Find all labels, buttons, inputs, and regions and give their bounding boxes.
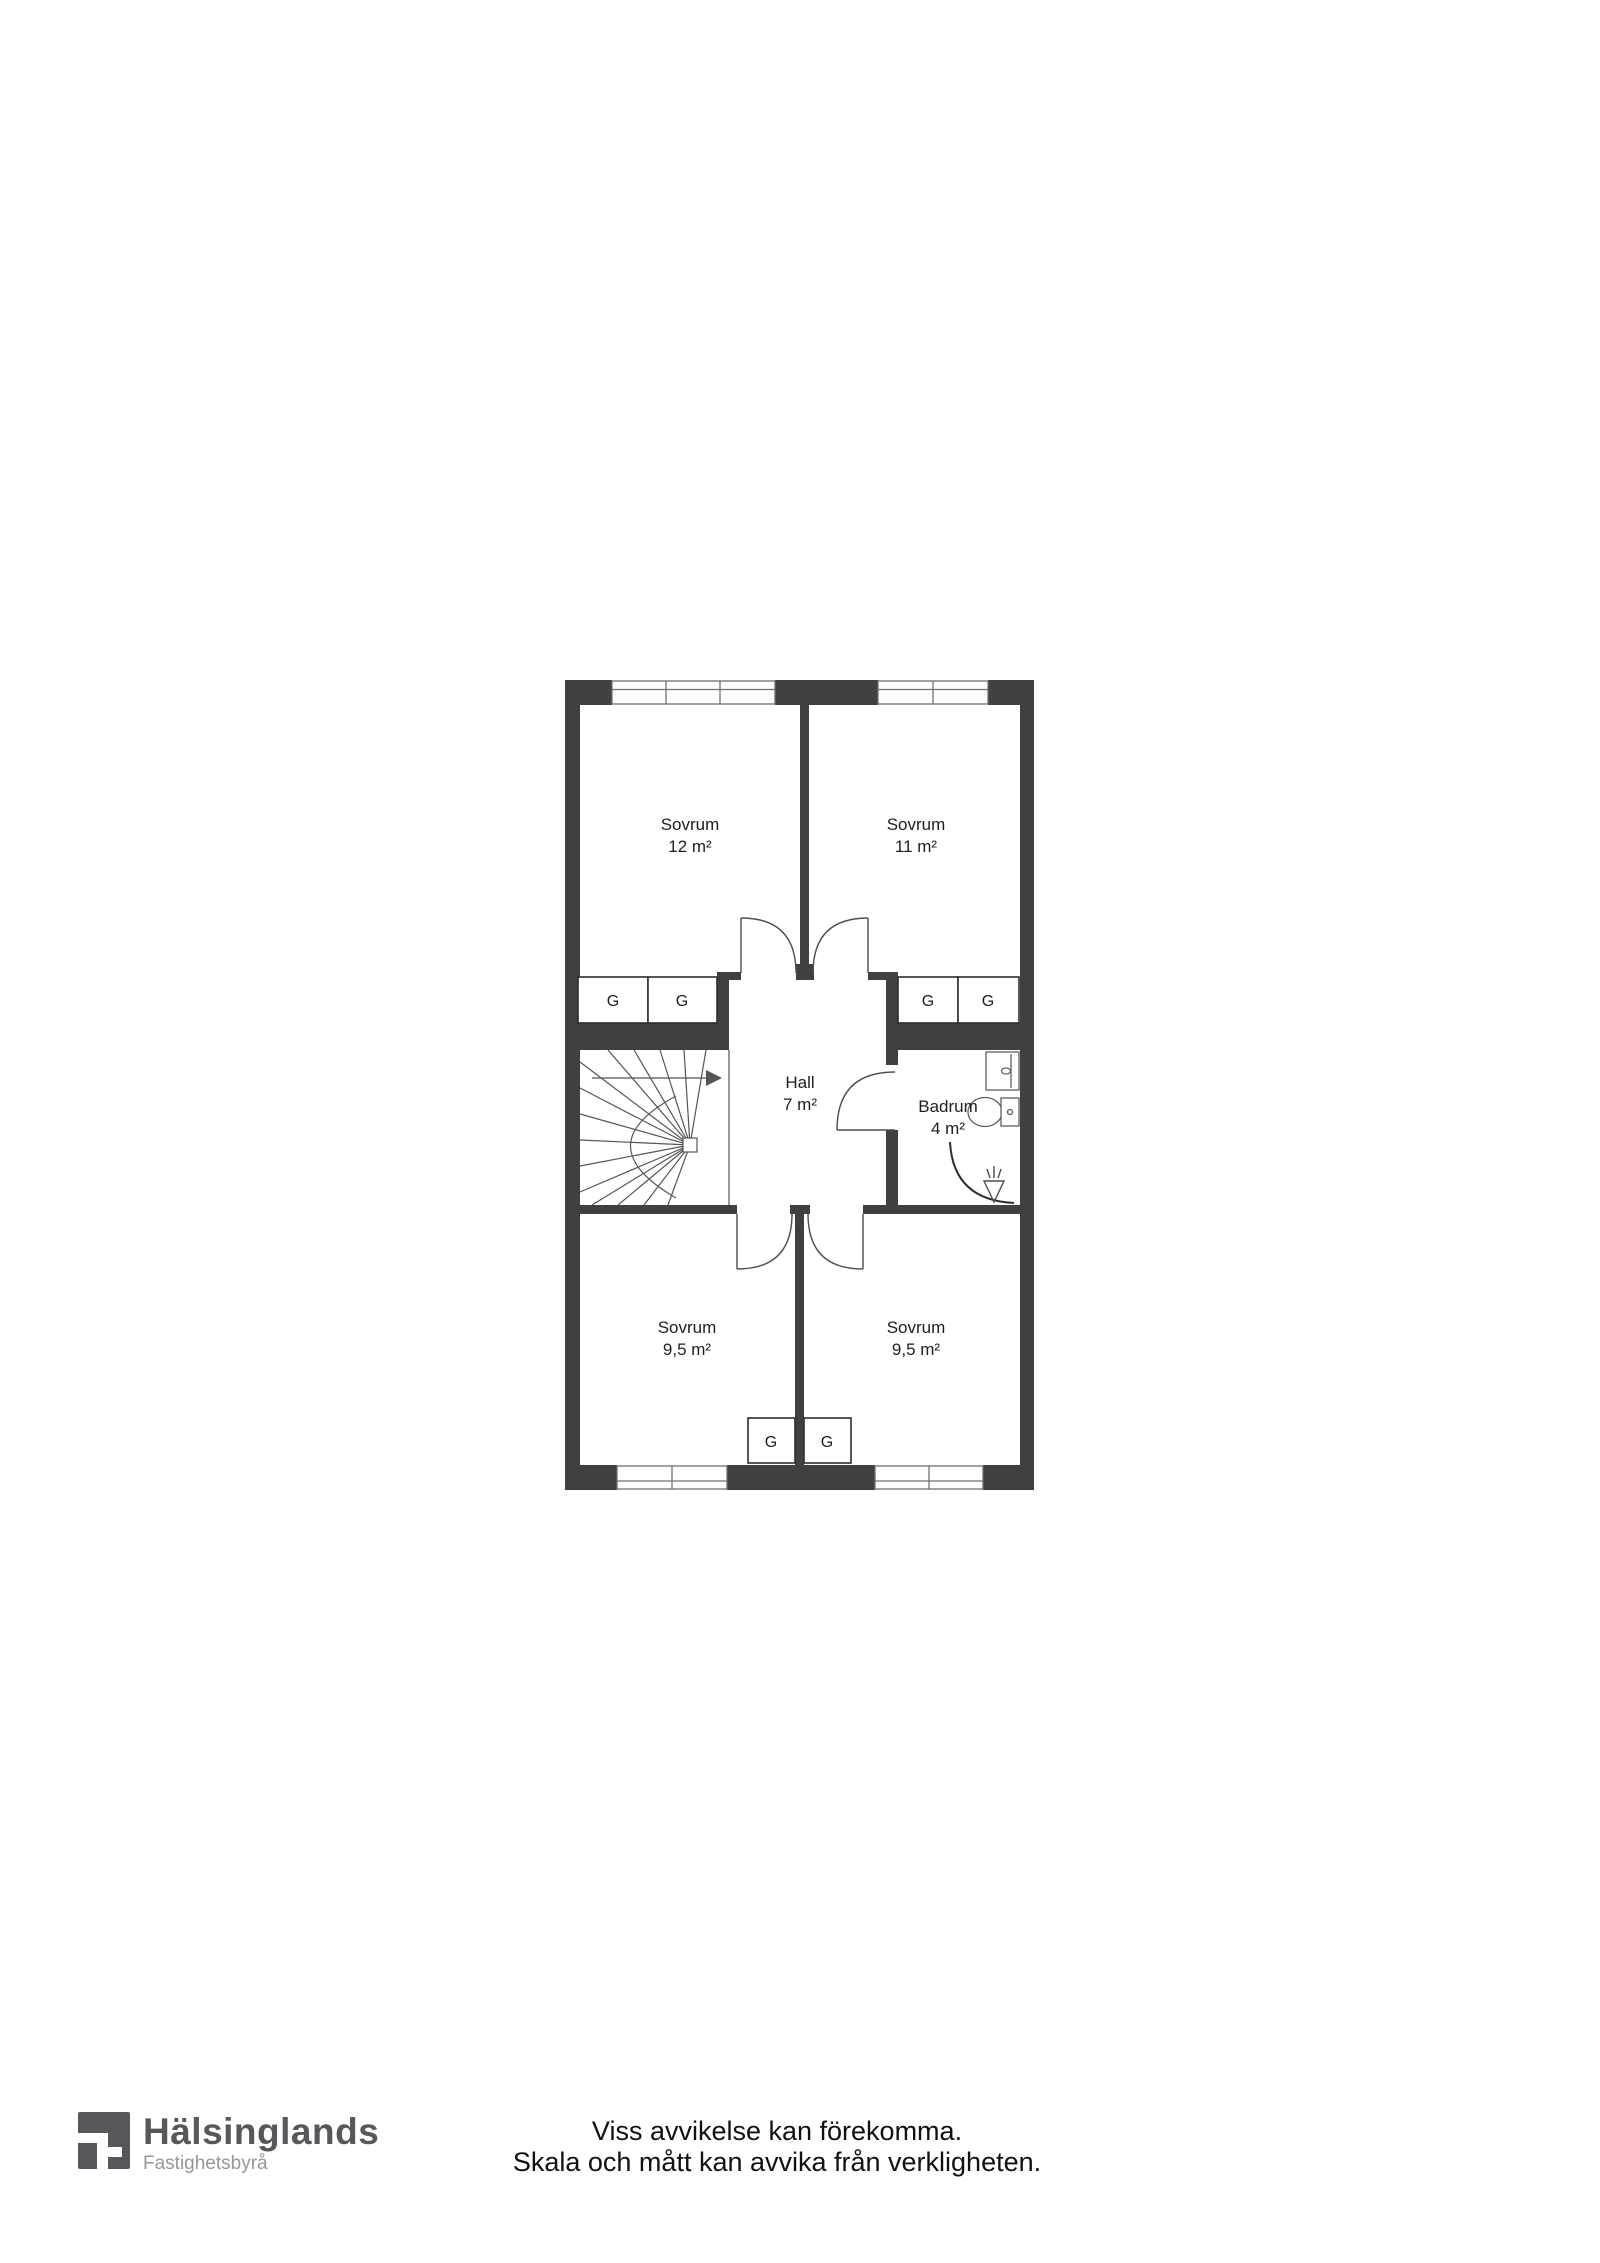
room-name-bedroom-tl: Sovrum <box>661 815 720 834</box>
brand-logo: Hälsinglands Fastighetsbyrå <box>78 2112 379 2174</box>
wall-bathroom-west-lower <box>886 1130 898 1205</box>
door-bedroom-br <box>808 1214 863 1269</box>
wall-bathroom-west-upper <box>886 972 898 1065</box>
room-area-bedroom-tl: 12 m² <box>668 837 712 856</box>
wall-exterior-bottom-1 <box>565 1465 617 1490</box>
room-area-bedroom-br: 9,5 m² <box>892 1340 941 1359</box>
room-name-bedroom-tr: Sovrum <box>887 815 946 834</box>
brand-logo-icon <box>78 2112 130 2169</box>
disclaimer-line-1: Viss avvikelse kan förekomma. <box>513 2116 1041 2147</box>
wardrobe-label: G <box>821 1434 833 1451</box>
wall-jamb-top-center <box>796 964 814 980</box>
brand-logo-icon-bar <box>108 2147 122 2157</box>
wall-piece-left-door <box>729 972 741 980</box>
wardrobe-label: G <box>922 993 934 1010</box>
floor-drain-icon <box>984 1166 1004 1202</box>
wall-exterior-left <box>565 680 580 1490</box>
brand-subtitle: Fastighetsbyrå <box>143 2153 379 2174</box>
floorplan-page: Sovrum 12 m² Sovrum 11 m² Hall 7 m² Badr… <box>0 0 1600 2263</box>
wall-piece-right-door <box>868 972 886 980</box>
sink-cabinet-icon <box>986 1052 1019 1090</box>
wall-exterior-bottom-2 <box>727 1465 875 1490</box>
room-name-bedroom-br: Sovrum <box>887 1318 946 1337</box>
room-area-bathroom: 4 m² <box>931 1119 965 1138</box>
brand-logo-icon-bar <box>97 2133 108 2169</box>
stairs-curve <box>631 1096 677 1198</box>
room-name-bathroom: Badrum <box>918 1097 978 1116</box>
brand-text: Hälsinglands Fastighetsbyrå <box>143 2112 379 2174</box>
door-bedroom-bl <box>737 1214 792 1269</box>
stairs <box>580 1050 729 1205</box>
wardrobe-label: G <box>982 993 994 1010</box>
wall-top-bedrooms-divider <box>800 705 809 964</box>
wall-exterior-top-3 <box>988 680 1034 705</box>
wall-hall-south-left <box>565 1205 737 1214</box>
floorplan-drawing: Sovrum 12 m² Sovrum 11 m² Hall 7 m² Badr… <box>565 680 1035 1490</box>
shower-corner-icon <box>950 1142 1014 1203</box>
disclaimer: Viss avvikelse kan förekomma. Skala och … <box>513 2116 1041 2178</box>
wall-exterior-top-1 <box>565 680 612 705</box>
disclaimer-line-2: Skala och mått kan avvika från verklighe… <box>513 2147 1041 2178</box>
wardrobe-label: G <box>607 993 619 1010</box>
door-bedroom-tr <box>813 918 868 973</box>
window-top-right <box>878 681 988 704</box>
wall-exterior-right <box>1020 680 1034 1490</box>
room-area-bedroom-tr: 11 m² <box>895 837 938 856</box>
window-top-left <box>612 681 775 704</box>
wall-hall-south-right <box>863 1205 1020 1214</box>
wall-bottom-bedrooms-divider <box>795 1214 804 1465</box>
doors <box>737 918 895 1269</box>
door-bedroom-tl <box>741 918 796 973</box>
wall-jamb-bottom-center <box>790 1205 810 1214</box>
stairs-newel <box>683 1138 697 1152</box>
room-name-bedroom-bl: Sovrum <box>658 1318 717 1337</box>
stairs-treads <box>580 1050 706 1205</box>
window-bottom-right <box>875 1466 983 1489</box>
wardrobe-label: G <box>765 1434 777 1451</box>
room-area-hall: 7 m² <box>783 1095 817 1114</box>
room-area-bedroom-bl: 9,5 m² <box>663 1340 712 1359</box>
wall-exterior-top-2 <box>775 680 878 705</box>
wall-wardrobe-band-right <box>886 1023 1020 1050</box>
wardrobe-label: G <box>676 993 688 1010</box>
room-name-hall: Hall <box>785 1073 814 1092</box>
wall-wardrobe-band-left <box>565 1023 729 1050</box>
brand-name: Hälsinglands <box>143 2112 379 2152</box>
door-bathroom <box>837 1072 895 1130</box>
window-bottom-left <box>617 1466 727 1489</box>
wall-exterior-bottom-3 <box>983 1465 1034 1490</box>
